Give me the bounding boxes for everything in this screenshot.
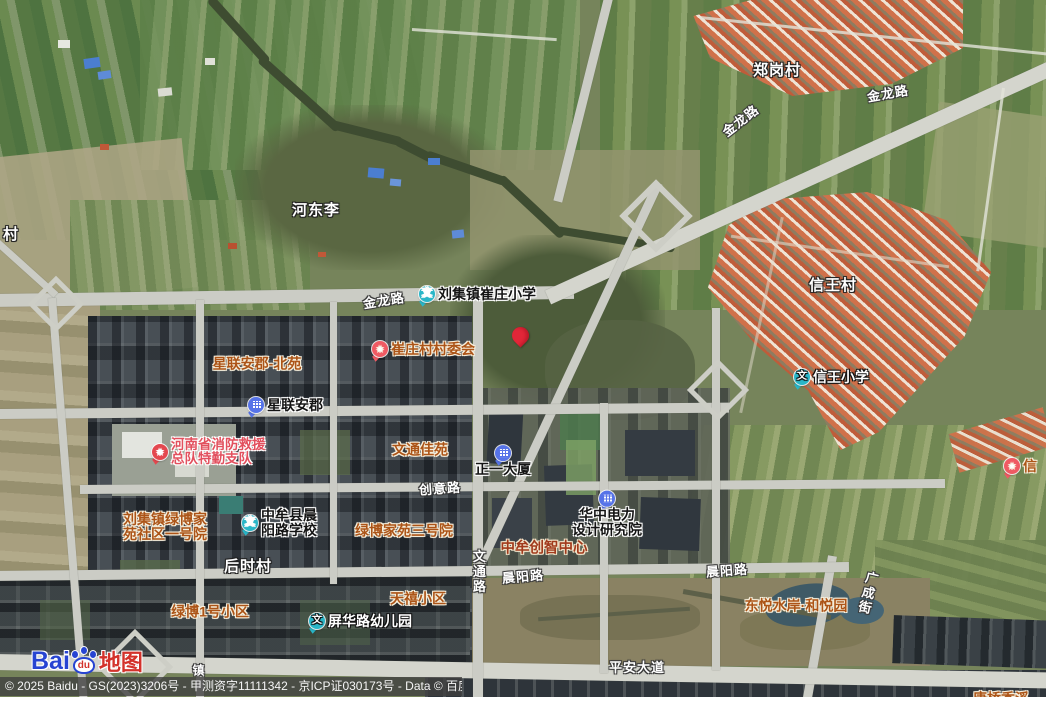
- attribution-text: © 2025 Baidu - GS(2023)3206号 - 甲测资字11111…: [5, 679, 462, 693]
- poi-wentong-jiayuan-text: 文通佳苑: [392, 443, 448, 458]
- gov-icon: ★: [152, 444, 168, 460]
- village-zhenggangcun-text: 郑岗村: [753, 63, 801, 79]
- road-partial-zhen-text: 镇: [192, 665, 205, 678]
- baidu-maps-satellite-view[interactable]: 郑岗村河东李信王村后时村村金龙路金龙路金龙路创意路晨阳路晨阳路文通路广成街平安大…: [0, 0, 1046, 705]
- poi-zhongmouxian-chenyanglu-xuexiao-text: 中牟县晨阳路学校: [261, 508, 317, 538]
- village-xinwangcun-text: 信王村: [809, 278, 857, 294]
- poi-dongyue-shuian-heyueyuan-text: 东悦水岸·和悦园: [745, 599, 848, 614]
- road-wentonglu-text: 文通路: [471, 550, 485, 595]
- road-jinlonglu-west: 金龙路: [362, 291, 406, 311]
- baidu-logo-map-word: 地图: [99, 651, 143, 674]
- road-chuangyilu-text: 创意路: [419, 481, 462, 498]
- school-icon: 文: [309, 613, 325, 629]
- poi-partial-xin-text: 信: [1023, 459, 1037, 474]
- poi-zhongmou-chuangzhi-zhongxin-text: 中牟创智中心: [501, 541, 588, 556]
- map-attribution-bar: © 2025 Baidu - GS(2023)3206号 - 甲测资字11111…: [0, 677, 462, 696]
- road-chuangyilu: 创意路: [419, 481, 462, 498]
- road-jinlonglu-diagonal: 金龙路: [720, 103, 762, 140]
- school-icon: 文: [242, 515, 258, 531]
- poi-xinglian-anjun-text: 星联安郡: [267, 398, 323, 413]
- poi-zhongmouxian-chenyanglu-xuexiao[interactable]: 文中牟县晨阳路学校: [242, 508, 317, 538]
- road-chenyanglu-center-text: 晨阳路: [501, 568, 544, 585]
- village-partial-cun-text: 村: [3, 227, 19, 243]
- poi-lvbojiayuan-sanhaoyuan-text: 绿博家苑三号院: [355, 524, 453, 539]
- poi-lvbojiayuan-sanhaoyuan[interactable]: 绿博家苑三号院: [355, 524, 453, 539]
- road-pingandadao: 平安大道: [609, 661, 665, 675]
- poi-xinwang-xiaoxue-text: 信王小学: [813, 370, 869, 385]
- baidu-logo-bai: Bai: [31, 649, 70, 674]
- poi-xinwang-xiaoxue[interactable]: 文信王小学: [794, 369, 869, 385]
- road-jinlonglu-east: 金龙路: [866, 84, 910, 105]
- poi-cuizhuangcun-cunweihui[interactable]: ★崔庄村村委会: [372, 341, 475, 357]
- baidu-paw-icon: du: [71, 646, 98, 674]
- school-icon: 文: [794, 369, 810, 385]
- baidu-maps-logo[interactable]: Bai du 地图: [31, 642, 143, 674]
- village-hedongli: 河东李: [292, 203, 340, 219]
- poi-zhengyi-dasha-text: 正一大厦: [475, 462, 531, 477]
- poi-tianxi-xiaoqu[interactable]: 天禧小区: [390, 592, 446, 607]
- poi-liujizhen-lvbojiayuan-yihaoyuan-text: 刘集镇绿博家苑社区一号院: [123, 512, 207, 542]
- poi-partial-xin[interactable]: ★信: [1004, 458, 1037, 474]
- road-chenyanglu-east: 晨阳路: [706, 563, 749, 580]
- village-zhenggangcun: 郑岗村: [753, 63, 801, 79]
- poi-henansheng-xiaofang-jiuyuan[interactable]: ★河南省消防救援总队特勤支队: [152, 438, 266, 467]
- poi-lvbo-1hao-xiaoqu[interactable]: 绿博1号小区: [171, 605, 249, 620]
- road-wentonglu: 文通路: [471, 550, 485, 595]
- road-jinlonglu-diagonal-text: 金龙路: [720, 103, 762, 140]
- poi-pinghualu-youeryuan[interactable]: 文屏华路幼儿园: [309, 613, 412, 629]
- school-icon: 文: [419, 286, 435, 302]
- road-guangchengjie: 广成街: [855, 570, 879, 617]
- poi-liujizhen-lvbojiayuan-yihaoyuan[interactable]: 刘集镇绿博家苑社区一号院: [123, 512, 207, 542]
- village-partial-cun: 村: [3, 227, 19, 243]
- poi-zhengyi-dasha[interactable]: 正一大厦: [475, 445, 531, 477]
- building-icon: [599, 491, 615, 507]
- poi-henansheng-xiaofang-jiuyuan-text: 河南省消防救援总队特勤支队: [171, 438, 266, 467]
- poi-pinghualu-youeryuan-text: 屏华路幼儿园: [328, 614, 412, 629]
- poi-huazhong-dianli-sheji-yanjiuyuan[interactable]: 华中电力设计研究院: [572, 491, 642, 538]
- village-hedongli-text: 河东李: [292, 203, 340, 219]
- village-xinwangcun: 信王村: [809, 278, 857, 294]
- village-houshicun: 后时村: [224, 559, 272, 575]
- star-icon: ★: [1004, 458, 1020, 474]
- road-jinlonglu-east-text: 金龙路: [866, 84, 910, 105]
- road-jinlonglu-west-text: 金龙路: [362, 291, 406, 311]
- building-icon: [495, 445, 511, 461]
- road-partial-zhen: 镇: [192, 665, 205, 678]
- bottom-white-strip: [0, 697, 1046, 705]
- star-icon: ★: [372, 341, 388, 357]
- poi-liujizhen-cuizhuang-xiaoxue[interactable]: 文刘集镇崔庄小学: [419, 286, 536, 302]
- road-pingandadao-text: 平安大道: [609, 661, 665, 675]
- village-houshicun-text: 后时村: [224, 559, 272, 575]
- poi-huazhong-dianli-sheji-yanjiuyuan-text: 华中电力设计研究院: [572, 508, 642, 538]
- road-chenyanglu-east-text: 晨阳路: [706, 563, 749, 580]
- poi-liujizhen-cuizhuang-xiaoxue-text: 刘集镇崔庄小学: [438, 287, 536, 302]
- poi-wentong-jiayuan[interactable]: 文通佳苑: [392, 443, 448, 458]
- poi-xinglian-anjun[interactable]: 星联安郡: [248, 397, 323, 413]
- road-guangchengjie-text: 广成街: [855, 570, 879, 617]
- poi-dongyue-shuian-heyueyuan[interactable]: 东悦水岸·和悦园: [745, 599, 848, 614]
- building-icon: [248, 397, 264, 413]
- map-pin-marker[interactable]: [512, 327, 530, 353]
- poi-xinglian-anjun-beiyuan-text: 星联安郡-北苑: [213, 357, 302, 372]
- poi-zhongmou-chuangzhi-zhongxin[interactable]: 中牟创智中心: [501, 541, 588, 556]
- poi-xinglian-anjun-beiyuan[interactable]: 星联安郡-北苑: [213, 357, 302, 372]
- pin-icon: [508, 323, 532, 347]
- road-chenyanglu-center: 晨阳路: [501, 568, 544, 585]
- poi-tianxi-xiaoqu-text: 天禧小区: [390, 592, 446, 607]
- poi-lvbo-1hao-xiaoqu-text: 绿博1号小区: [171, 605, 249, 620]
- poi-cuizhuangcun-cunweihui-text: 崔庄村村委会: [391, 342, 475, 357]
